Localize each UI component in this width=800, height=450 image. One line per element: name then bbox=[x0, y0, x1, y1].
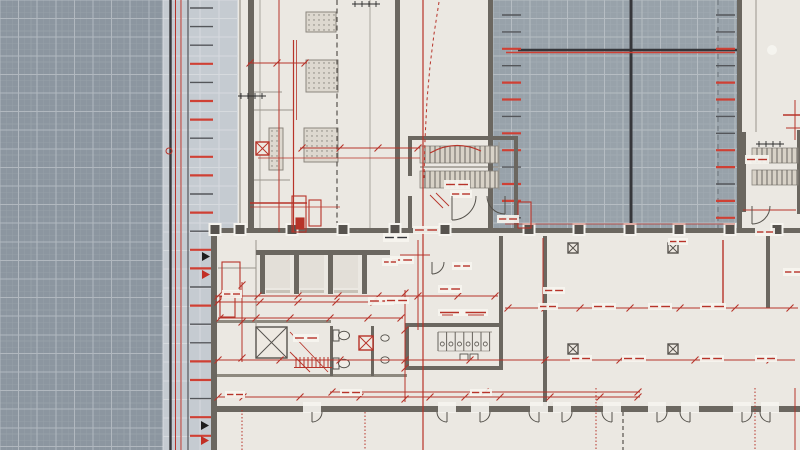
door-opening bbox=[648, 402, 666, 413]
cad-drawing-viewport[interactable] bbox=[0, 0, 800, 450]
door-opening bbox=[761, 402, 779, 413]
column bbox=[441, 225, 450, 234]
stall-fixture bbox=[483, 342, 487, 346]
facade-band-upper bbox=[163, 0, 238, 232]
column bbox=[626, 225, 635, 234]
wall-segment bbox=[499, 236, 503, 370]
wall-segment bbox=[766, 236, 770, 308]
column bbox=[675, 225, 684, 234]
wall-segment bbox=[488, 0, 493, 230]
toilet bbox=[339, 331, 350, 339]
wall-segment bbox=[407, 323, 503, 327]
column bbox=[525, 225, 534, 234]
column bbox=[339, 225, 348, 234]
basin bbox=[381, 335, 389, 341]
floor-plan-canvas[interactable] bbox=[0, 0, 800, 450]
label-halo bbox=[767, 45, 777, 55]
elevator-shaft bbox=[299, 255, 324, 288]
door-opening bbox=[471, 402, 489, 413]
wall-segment bbox=[256, 250, 390, 255]
elevator-shaft bbox=[333, 255, 358, 288]
wall-segment bbox=[408, 196, 412, 232]
elevator-bank bbox=[265, 255, 358, 293]
column bbox=[726, 225, 735, 234]
wall-segment bbox=[395, 0, 400, 232]
column bbox=[211, 225, 220, 234]
wall-segment bbox=[543, 236, 547, 408]
door-opening bbox=[733, 402, 751, 413]
wall-segment bbox=[742, 132, 746, 212]
elevator-door bbox=[334, 290, 358, 293]
column bbox=[575, 225, 584, 234]
wall-segment bbox=[407, 366, 503, 370]
door-opening bbox=[681, 402, 699, 413]
wall-segment bbox=[408, 136, 518, 140]
door-opening bbox=[553, 402, 571, 413]
stall-fixture bbox=[458, 342, 462, 346]
column bbox=[236, 225, 245, 234]
column bbox=[391, 225, 400, 234]
door-opening bbox=[438, 402, 456, 413]
stall-fixture bbox=[449, 342, 453, 346]
red-detail-box bbox=[296, 218, 304, 229]
wall-segment bbox=[294, 250, 299, 294]
wall-segment bbox=[260, 250, 265, 294]
stair-run bbox=[752, 170, 798, 185]
wall-segment bbox=[328, 250, 333, 294]
stair-run bbox=[420, 146, 498, 163]
courtyard-grid bbox=[493, 0, 737, 230]
stall-fixture bbox=[466, 342, 470, 346]
elevator-shaft bbox=[265, 255, 290, 288]
wall-segment bbox=[211, 230, 217, 450]
stall-fixture bbox=[440, 342, 444, 346]
wall-segment bbox=[737, 0, 742, 230]
wall-segment bbox=[213, 406, 800, 412]
wall-segment bbox=[371, 326, 374, 376]
exterior-grid-left bbox=[0, 0, 163, 450]
door-opening bbox=[530, 402, 548, 413]
sink bbox=[460, 354, 468, 360]
elevator-door bbox=[266, 290, 290, 293]
elevator-door bbox=[300, 290, 324, 293]
wall-segment bbox=[408, 136, 412, 176]
wall-segment bbox=[248, 0, 254, 232]
wall-segment bbox=[362, 250, 367, 294]
stall-fixture bbox=[475, 342, 479, 346]
door-opening bbox=[303, 402, 321, 413]
door-opening bbox=[603, 402, 621, 413]
